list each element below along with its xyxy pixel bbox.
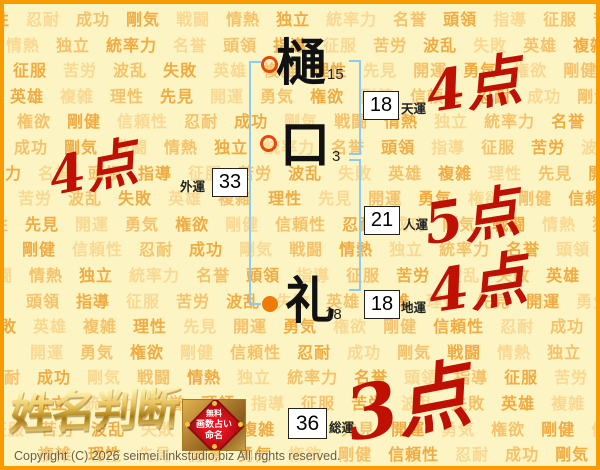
outer-luck-label: 外運 bbox=[180, 176, 205, 195]
surname-char-2-strokes: 3 bbox=[332, 148, 340, 165]
seimei-handan-result-page: 信頼性忍耐成功剛気戦闘情熱独立統率力名誉頭領指導征服苦労波乱情熱独立統率力名誉頭… bbox=[0, 0, 600, 470]
background-word: 複雑 bbox=[596, 268, 600, 285]
outer-luck-score: 4点 bbox=[45, 136, 141, 204]
badge-line-1: 無料 bbox=[206, 409, 222, 419]
earth-luck-value-box: 18 bbox=[364, 290, 400, 319]
total-luck-value-box: 36 bbox=[288, 408, 327, 439]
surname-char-2: 口 bbox=[280, 120, 330, 170]
person-luck-score: 5点 bbox=[420, 183, 523, 253]
heaven-luck-score: 4点 bbox=[422, 51, 525, 121]
earth-luck-score: 4点 bbox=[424, 249, 530, 322]
badge-line-2: 画数占い bbox=[196, 419, 232, 430]
heaven-luck-bracket bbox=[349, 61, 360, 154]
heaven-luck-label: 天運 bbox=[401, 98, 426, 117]
person-luck-bracket bbox=[349, 160, 360, 290]
given-name-marker-icon bbox=[262, 296, 278, 312]
free-naming-badge[interactable]: 無料 画数占い 命名 bbox=[182, 399, 246, 451]
earth-luck-label: 地運 bbox=[401, 297, 426, 316]
given-name-char-strokes: 18 bbox=[325, 306, 342, 323]
outer-luck-value-box: 33 bbox=[212, 168, 248, 197]
badge-line-3: 命名 bbox=[205, 430, 223, 441]
background-word: 勇気 bbox=[0, 114, 1, 131]
site-logo[interactable]: 姓名判断 bbox=[7, 385, 181, 439]
surname-char-1: 樋 bbox=[276, 38, 326, 88]
badge-text: 無料 画数占い 命名 bbox=[183, 400, 245, 450]
surname-marker-icon bbox=[260, 135, 277, 152]
heaven-luck-value-box: 18 bbox=[363, 91, 399, 120]
surname-char-1-strokes: 15 bbox=[327, 66, 344, 83]
total-luck-score: 3点 bbox=[340, 357, 473, 453]
outer-luck-bracket bbox=[250, 62, 261, 304]
copyright-text: Copyright (C) 2026 seimei.linkstudio.biz… bbox=[14, 449, 341, 463]
person-luck-value-box: 21 bbox=[364, 206, 400, 235]
